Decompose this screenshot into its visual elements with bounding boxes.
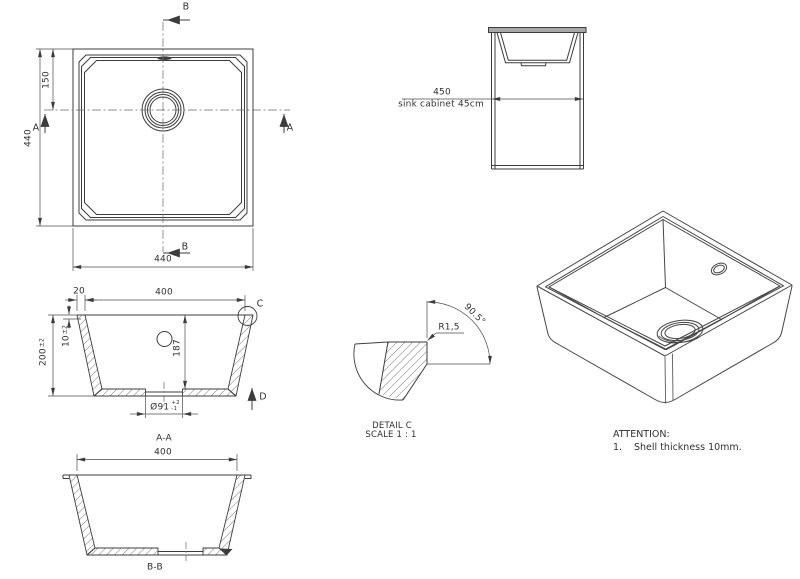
bb-left-wall-hatch bbox=[69, 475, 95, 555]
sink-bowl-outline bbox=[497, 33, 578, 63]
direction-d-label: D bbox=[259, 392, 267, 402]
radius-leader bbox=[428, 333, 437, 341]
dim-aa-inner-width: 400 bbox=[155, 289, 173, 298]
dim-aa-height: 200±2 bbox=[40, 338, 49, 366]
section-b-label-bottom: B bbox=[182, 242, 189, 252]
countertop-slab bbox=[489, 28, 587, 33]
detail-c-scale: SCALE 1 : 1 bbox=[365, 431, 416, 440]
section-aa-title: A-A bbox=[156, 435, 172, 444]
bb-right-wall-hatch bbox=[219, 475, 245, 555]
attention-item-number: 1. bbox=[613, 442, 634, 455]
dim-aa-rim-width: 20 bbox=[73, 288, 85, 297]
technical-drawing-sink: B B A A 440 150 440 450 sink cabinet 45c… bbox=[0, 0, 800, 579]
sink-bowl-inner bbox=[501, 33, 575, 61]
dim-plan-width: 440 bbox=[154, 256, 172, 265]
dim-aa-depth: 187 bbox=[174, 339, 183, 357]
bb-bottom-hatch-left bbox=[87, 548, 158, 555]
aa-left-wall-hatch bbox=[77, 315, 102, 396]
attention-title: ATTENTION: bbox=[613, 429, 742, 442]
dim-aa-shell: 10±2 bbox=[63, 325, 72, 347]
aa-overflow-hole bbox=[157, 332, 172, 347]
aa-bottom-hatch-left bbox=[94, 389, 146, 396]
drawing-linework bbox=[0, 0, 800, 579]
aa-right-wall-hatch bbox=[228, 315, 253, 396]
plan-dimensions bbox=[36, 49, 253, 271]
aa-bottom-hatch-right bbox=[183, 389, 237, 396]
dim-plan-height: 440 bbox=[25, 129, 34, 147]
dim-bb-inner-width: 400 bbox=[154, 449, 172, 458]
section-b-label-top: B bbox=[183, 2, 190, 12]
attention-item-text: Shell thickness 10mm. bbox=[634, 442, 742, 453]
section-bb-view bbox=[63, 454, 251, 561]
attention-item: 1.Shell thickness 10mm. bbox=[613, 442, 742, 455]
section-a-label-left: A bbox=[33, 123, 40, 133]
isometric-view bbox=[537, 211, 792, 403]
dim-detail-radius: R1,5 bbox=[438, 324, 459, 333]
dim-plan-drain-offset: 150 bbox=[43, 71, 52, 89]
attention-note: ATTENTION: 1.Shell thickness 10mm. bbox=[613, 429, 742, 455]
cabinet-view bbox=[489, 28, 587, 170]
section-aa-view bbox=[48, 295, 257, 418]
section-bb-title: B-B bbox=[147, 564, 163, 573]
detail-c-balloon-label: C bbox=[257, 299, 264, 309]
section-a-label-right: A bbox=[287, 123, 294, 133]
dim-aa-drain-dia: Ø91+2-1 bbox=[150, 401, 180, 413]
cabinet-caption: sink cabinet 45cm bbox=[398, 101, 484, 110]
dim-cabinet-width: 450 bbox=[433, 89, 451, 98]
overflow-slot bbox=[158, 56, 172, 60]
